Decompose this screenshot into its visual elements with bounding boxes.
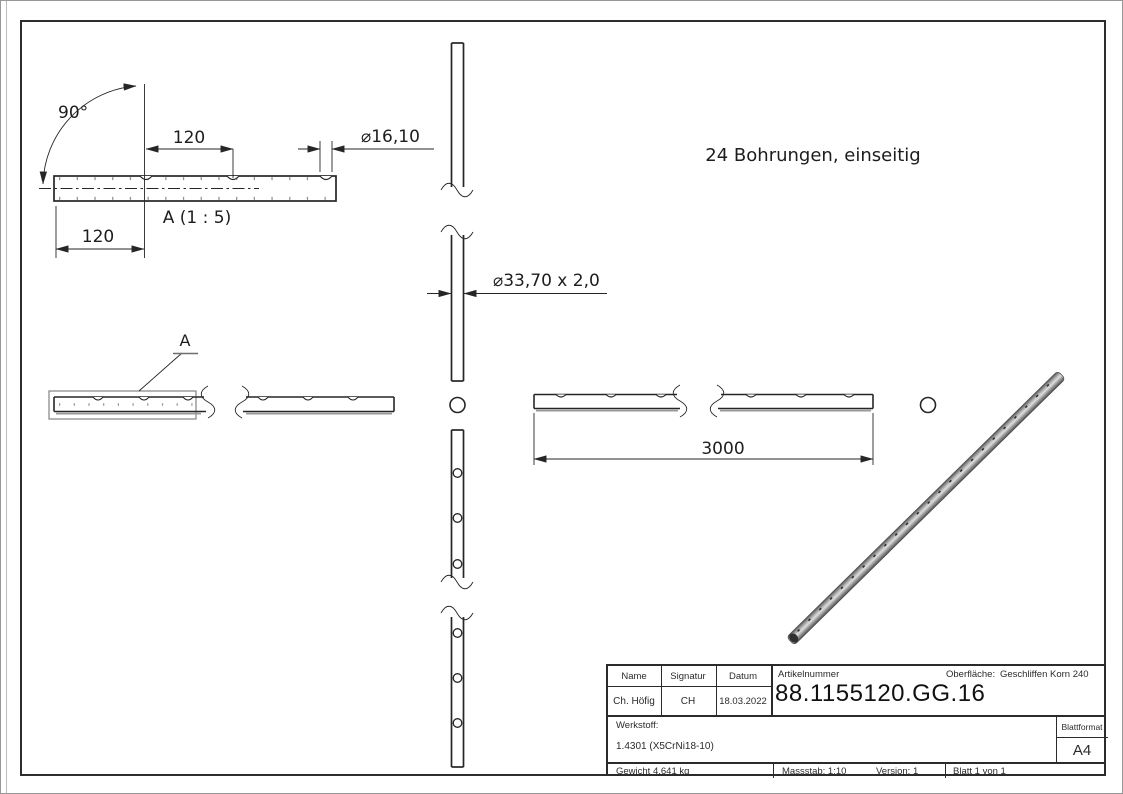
break-line <box>441 575 473 589</box>
article-number: 88.1155120.GG.16 <box>775 682 985 706</box>
drill-hole <box>453 469 462 478</box>
hole-notch <box>656 395 666 398</box>
break-line <box>673 385 687 417</box>
detail-view-title: A (1 : 5) <box>163 210 231 227</box>
drill-hole <box>453 674 462 683</box>
scale-value: Massstab: 1:10 <box>782 767 846 777</box>
title-block-line <box>771 666 773 715</box>
tube-segment-1 <box>441 43 473 197</box>
break-line <box>201 386 215 418</box>
hole-notch <box>556 395 566 398</box>
detail-leader-line <box>139 353 182 391</box>
hole-notch <box>746 395 756 398</box>
hole-notch <box>844 395 854 398</box>
sheet-number: Blatt 1 von 1 <box>953 767 1006 777</box>
title-block: Name Signatur Datum Ch. Höfig CH 18.03.2… <box>606 664 1106 776</box>
break-line <box>441 606 473 620</box>
tube-segment-4 <box>441 606 473 767</box>
dim-angle-text: 90° <box>58 105 88 122</box>
dim-tube-section-text: ⌀33,70 x 2,0 <box>493 273 600 290</box>
bar-piece-2 <box>235 386 394 418</box>
drill-hole <box>453 629 462 638</box>
surface-label: Oberfläche: <box>946 670 995 680</box>
title-block-line <box>661 666 662 715</box>
material-label: Werkstoff: <box>616 721 658 731</box>
title-block-line <box>608 686 771 687</box>
dim-total-length-text: 3000 <box>701 441 744 458</box>
title-block-line <box>716 666 717 715</box>
note-bohrungen: 24 Bohrungen, einseitig <box>705 147 920 165</box>
name-value: Ch. Höfig <box>613 697 655 707</box>
hole-notch <box>183 397 193 400</box>
article-label: Artikelnummer <box>778 670 839 680</box>
title-block-line <box>608 762 1104 764</box>
drill-hole <box>453 514 462 523</box>
date-label: Datum <box>729 672 757 682</box>
hole-notch <box>796 395 806 398</box>
signature-value: CH <box>681 697 695 707</box>
signature-label: Signatur <box>670 672 705 682</box>
break-line <box>441 183 473 197</box>
title-block-line <box>945 762 946 778</box>
tube-segment-2 <box>441 225 473 381</box>
surface-value: Geschliffen Korn 240 <box>1000 670 1089 680</box>
title-block-line <box>1056 715 1057 762</box>
break-line <box>710 385 724 417</box>
vertical-tube-view <box>427 43 607 767</box>
drawing-sheet: 24 Bohrungen, einseitig 90° 120 ⌀16,10 1… <box>0 0 1123 794</box>
hole-notch <box>606 395 616 398</box>
version-value: Version: 1 <box>876 767 918 777</box>
sheet-format-label: Blattformat <box>1061 723 1102 732</box>
detail-marker-label: A <box>180 333 191 349</box>
hole-notch <box>303 397 313 400</box>
side-view-left-bar <box>49 353 394 419</box>
drill-hole <box>453 560 462 569</box>
material-value: 1.4301 (X5CrNi18-10) <box>616 742 714 752</box>
drill-hole <box>453 719 462 728</box>
name-label: Name <box>621 672 646 682</box>
hole-notch <box>258 397 268 400</box>
hole-notch <box>348 397 358 400</box>
sheet-format-value: A4 <box>1073 743 1091 758</box>
bar-piece-2 <box>710 385 873 417</box>
hole-notch <box>139 397 149 400</box>
break-line <box>441 225 473 239</box>
bar-piece-1 <box>534 385 687 417</box>
dim-hole-diameter-text: ⌀16,10 <box>361 129 420 146</box>
tube-end-view-circle <box>450 398 465 413</box>
dim-end-offset-text: 120 <box>82 229 114 246</box>
tube-segment-3 <box>441 430 473 589</box>
angle-dimension-arc <box>43 86 136 184</box>
tube-end-view-circle <box>921 398 936 413</box>
title-block-line <box>608 715 1104 717</box>
title-block-line <box>1056 737 1108 738</box>
detail-boundary-box <box>49 391 196 419</box>
date-value: 18.03.2022 <box>719 697 767 707</box>
title-block-line <box>773 762 774 778</box>
dim-spacing-text: 120 <box>173 130 205 147</box>
hole-notch <box>93 397 103 400</box>
weight-value: Gewicht 4.641 kg <box>616 767 689 777</box>
